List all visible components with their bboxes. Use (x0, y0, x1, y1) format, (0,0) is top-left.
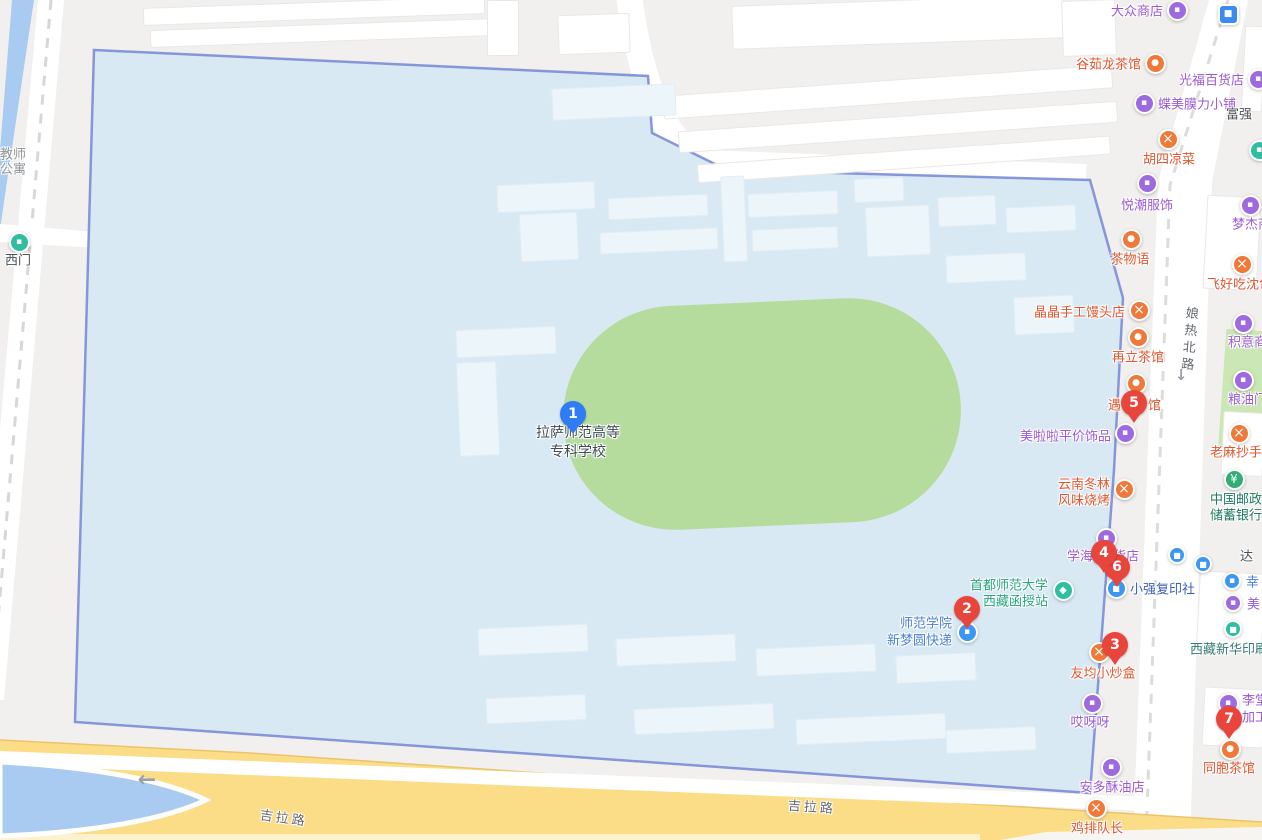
pin-number: 1 (568, 406, 578, 422)
yu-teahouse-label[interactable]: 遇 (1108, 395, 1121, 414)
building (455, 326, 556, 358)
chawuyu-tea-label[interactable]: 茶物语 (1110, 249, 1149, 268)
diemei-shop-label[interactable]: 蝶美膜力小铺 (1158, 94, 1236, 113)
shopping-bag-icon[interactable]: ▪ (1167, 0, 1188, 21)
teacup-icon[interactable]: ● (1128, 327, 1149, 348)
shopping-bag-icon[interactable]: ▪ (1233, 370, 1254, 391)
restaurant-icon[interactable]: × (1232, 254, 1253, 275)
pin-number: 3 (1110, 637, 1120, 653)
building (551, 83, 676, 120)
restaurant-icon[interactable]: × (1158, 129, 1179, 150)
teacup-icon[interactable]: ● (1121, 229, 1142, 250)
dazhong-store-label[interactable]: 大众商店 (1111, 1, 1163, 20)
map-pin-7[interactable]: 7 (1216, 706, 1242, 732)
pin-number: 4 (1099, 545, 1109, 561)
building (937, 195, 996, 228)
gurulong-teahouse-label[interactable]: 谷茹龙茶馆 (1076, 54, 1141, 73)
shopping-bag-icon[interactable]: ▪ (1233, 313, 1254, 334)
shopping-bag-icon[interactable]: ▪ (1134, 93, 1155, 114)
liangyou-store-label[interactable]: 粮油门市 (1228, 389, 1262, 408)
building (946, 726, 1037, 754)
building (720, 176, 748, 263)
restaurant-icon[interactable]: × (1129, 300, 1150, 321)
restaurant-icon[interactable]: × (1229, 423, 1250, 444)
pin-number: 2 (962, 601, 972, 617)
map-pin-2[interactable]: 2 (954, 596, 980, 622)
jiyi-store-label[interactable]: 积意商 (1228, 332, 1262, 351)
yunnan-donglin-bbq-label[interactable]: 风味烧烤 (1058, 490, 1110, 509)
youjun-restaurant-label[interactable]: 友均小炒盒 (1070, 663, 1135, 682)
metro-station-icon[interactable]: ■ (1218, 4, 1239, 25)
restaurant-icon[interactable]: × (1086, 798, 1107, 819)
mei-poi-label[interactable]: 美 (1247, 594, 1260, 613)
xiaoqiang-copy-shop-label[interactable]: 小强复印社 (1130, 579, 1195, 598)
litang-processing-label[interactable]: 加工 (1242, 707, 1262, 726)
teacup-icon[interactable]: ● (1145, 53, 1166, 74)
teacup-icon[interactable]: ● (1220, 739, 1241, 760)
shopping-bag-icon[interactable]: ▪ (1224, 594, 1242, 612)
road-name-label: 吉拉路 (787, 795, 836, 817)
shopping-bag-icon[interactable]: ▪ (1248, 69, 1262, 90)
bank-icon[interactable]: ¥ (1224, 469, 1245, 490)
building (755, 643, 876, 676)
xuehai-store-label[interactable]: 学海 (1067, 546, 1093, 565)
xing-poi-label[interactable]: 幸 (1246, 572, 1259, 591)
building (615, 633, 736, 666)
building (945, 252, 1026, 283)
map-pin-3[interactable]: 3 (1102, 632, 1128, 658)
building (519, 212, 579, 262)
building (485, 694, 586, 724)
building (487, 0, 519, 56)
building (895, 652, 976, 683)
capital-normal-univ-tibet-station-label[interactable]: 西藏函授站 (983, 591, 1048, 610)
bus-stop-icon[interactable]: ■ (1194, 555, 1212, 573)
shopping-bag-icon[interactable]: ▪ (1240, 195, 1261, 216)
husi-cold-dishes-label[interactable]: 胡四凉菜 (1143, 149, 1195, 168)
teacher-apartment-label[interactable]: 公寓 (0, 159, 26, 178)
fuqiang-label-label[interactable]: 富强 (1226, 104, 1252, 123)
shopping-bag-icon[interactable]: ▪ (1137, 173, 1158, 194)
delivery-icon[interactable]: ▪ (1223, 572, 1241, 590)
pin-number: 7 (1224, 711, 1234, 727)
shopping-bag-icon[interactable]: ▪ (1082, 693, 1103, 714)
building (456, 361, 500, 457)
jipai-captain-label[interactable]: 鸡排队长 (1071, 818, 1123, 837)
restaurant-icon[interactable]: × (1114, 479, 1135, 500)
pin-number: 5 (1129, 395, 1139, 411)
yu-teahouse-label[interactable]: 馆 (1148, 395, 1161, 414)
da-label-label[interactable]: 达 (1240, 546, 1253, 565)
map-pin-5[interactable]: 5 (1121, 390, 1147, 416)
building (752, 226, 839, 252)
yuechao-clothing-label[interactable]: 悦潮服饰 (1121, 195, 1173, 214)
map-pin-4[interactable]: 4 (1091, 540, 1117, 566)
map-canvas[interactable]: 拉萨师范高等 专科学校 ▪大众商店■●谷茹龙茶馆▪光福百货店▪蝶美膜力小铺富强×… (0, 0, 1262, 840)
shopping-bag-icon[interactable]: ▪ (1115, 423, 1136, 444)
guangfu-store-label[interactable]: 光福百货店 (1179, 70, 1244, 89)
meilala-accessories-label[interactable]: 美啦啦平价饰品 (1020, 426, 1111, 445)
direction-arrow-icon: ← (138, 768, 156, 793)
xinhua-printing-label[interactable]: 西藏新华印刷 (1190, 639, 1262, 658)
campus-name-line2: 专科学校 (536, 443, 620, 462)
building (865, 205, 931, 258)
aiyaya-shop-label[interactable]: 哎呀呀 (1070, 712, 1109, 731)
mengjie-store-label[interactable]: 梦杰商 (1232, 214, 1262, 233)
sports-field (558, 293, 965, 534)
building (608, 194, 709, 220)
anduo-butter-shop-label[interactable]: 安多酥油店 (1079, 777, 1144, 796)
tongbao-teahouse-label[interactable]: 同胞茶馆 (1203, 758, 1255, 777)
building (477, 624, 588, 657)
laoma-chaoshou-label[interactable]: 老麻抄手 (1210, 442, 1262, 461)
jingjing-mantou-label[interactable]: 晶晶手工馒头店 (1034, 302, 1125, 321)
building (557, 13, 630, 55)
building (854, 177, 905, 203)
feihaochi-baozi-label[interactable]: 飞好吃沈包 (1207, 274, 1262, 293)
building (496, 181, 595, 213)
bus-stop-icon[interactable]: ■ (1168, 546, 1186, 564)
map-pin-1[interactable]: 1 (560, 401, 586, 427)
xinmengyuan-express-label[interactable]: 新梦圆快递 (887, 630, 952, 649)
building (1005, 204, 1076, 233)
printer-icon[interactable]: ■ (1224, 620, 1242, 638)
building (1061, 0, 1117, 57)
zaili-teahouse-label[interactable]: 再立茶馆 (1112, 347, 1164, 366)
direction-arrow-icon: ↓ (1175, 366, 1188, 384)
west-gate-label[interactable]: 西门 (5, 250, 31, 269)
education-icon[interactable]: ◆ (1053, 580, 1074, 601)
china-post-savings-bank-label[interactable]: 储蓄银行 (1210, 505, 1262, 524)
building (748, 190, 839, 218)
shopping-bag-icon[interactable]: ▪ (1101, 757, 1122, 778)
